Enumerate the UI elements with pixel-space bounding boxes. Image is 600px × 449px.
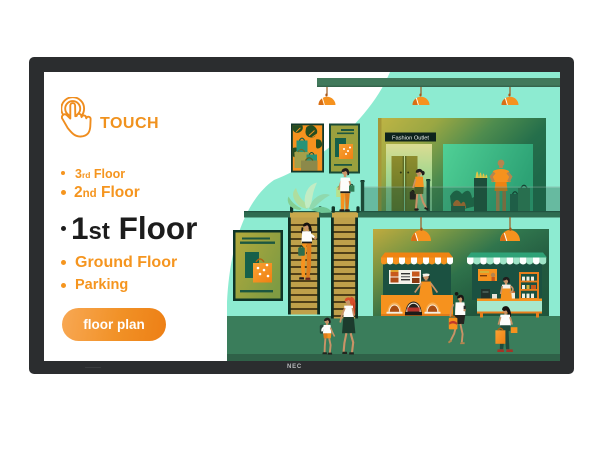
svg-text:Fashion Outlet: Fashion Outlet — [392, 135, 429, 141]
